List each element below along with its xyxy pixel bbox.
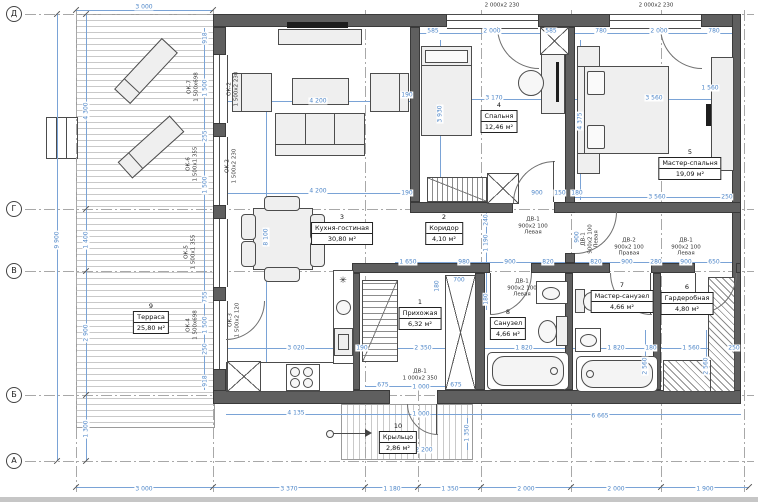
wall-top — [538, 14, 610, 27]
dim-label: 2 900 — [83, 323, 90, 342]
bed-double — [577, 66, 669, 154]
washbasin — [575, 328, 601, 352]
dim-label: 3 560 — [647, 194, 666, 201]
dim-label: 780 — [594, 28, 607, 35]
door-tag-dv2: ДВ-2900х2 100Правая — [614, 237, 644, 257]
dim-label: 2 200 — [414, 447, 433, 454]
dim-label: 918 — [202, 31, 209, 44]
dim-label: 900 — [503, 259, 516, 266]
dim-label: 180 — [644, 345, 657, 352]
axis-line-1 — [76, 10, 77, 492]
dim-label: 255 — [202, 129, 209, 142]
dim-label: 1 560 — [700, 85, 719, 92]
dim-label: 820 — [589, 259, 602, 266]
oven — [334, 328, 353, 356]
room-label-master-bath: 7Мастер-санузел4,66 м² — [591, 281, 654, 313]
dim-label: 900 — [530, 190, 543, 197]
dim-label: 650 — [707, 259, 720, 266]
room-label-terrace: 9Терраса25,80 м² — [133, 302, 169, 334]
dim-label: 2 000 — [482, 28, 501, 35]
dim-label: 190 — [400, 190, 413, 197]
fridge-icon: ✳ — [339, 278, 347, 285]
dim-label: 980 — [457, 259, 470, 266]
dim-label: 240 — [483, 213, 490, 226]
door-arc-bedroom — [513, 161, 555, 203]
wall-living-bedroom — [410, 27, 420, 202]
dim-label: 250 — [202, 342, 209, 355]
axis-bubble-g: Г — [6, 201, 22, 217]
washbasin — [536, 281, 568, 304]
dim-label: 1 820 — [606, 345, 625, 352]
dim-label: 755 — [202, 290, 209, 303]
room-label-bath: 8Санузел4,66 м² — [490, 308, 526, 340]
dim-label: 150 — [553, 190, 566, 197]
sheet-edge — [0, 497, 758, 502]
window-tag-ok5: ОК-51 500х1 355 — [184, 235, 197, 270]
dining-chair — [264, 267, 300, 282]
floor-plan: ✳ — [0, 0, 758, 502]
dim-label: 675 — [376, 382, 389, 389]
terrace-steps — [46, 117, 78, 159]
dim-label: 900 — [679, 259, 692, 266]
toilet-tank — [556, 316, 568, 346]
door-tag-dv1: ДВ-1900х2 100Левая — [507, 278, 537, 298]
axis-bubble-d: Д — [6, 6, 22, 22]
axis-line-8 — [744, 10, 745, 492]
dim-label: 4 375 — [577, 111, 584, 130]
dim-label: 3 370 — [279, 486, 298, 493]
axis-bubble-b: Б — [6, 387, 22, 403]
dim-label: 2 000 — [516, 486, 535, 493]
window-tag-ok3: ОК-31 500х2 120 — [228, 303, 241, 338]
dim-label: 1 560 — [681, 345, 700, 352]
dim-label: 180 — [483, 292, 490, 305]
closet-hatch — [427, 177, 487, 202]
room-label-kitchen-living: 3Кухня-гостиная30,80 м² — [311, 213, 373, 245]
kitchen-corner-cabinet — [227, 361, 261, 392]
window-swing-bedroom — [497, 27, 539, 69]
dim-label: 2 560 — [642, 356, 649, 375]
dim-label: 190 — [400, 92, 413, 99]
dim-label: 1 500 — [202, 175, 209, 194]
dim-label: 1 190 — [483, 233, 490, 252]
door-tag-entrance: ДВ-11 000х2 350 — [403, 369, 438, 382]
dim-label: 700 — [452, 277, 465, 284]
dim-label: 180 — [570, 190, 583, 197]
sofa — [275, 113, 365, 156]
axis-bubble-a: А — [6, 453, 22, 469]
dim-label: 1 180 — [382, 486, 401, 493]
dim-label: 4 300 — [83, 101, 90, 120]
window-tag-ok2: ОК-21 500х2 230 — [225, 149, 238, 184]
hall-wardrobe — [445, 275, 476, 390]
tv — [706, 104, 711, 126]
door-leaf — [436, 404, 437, 434]
window-tag-ok1: ОК-12 000х2 230 — [639, 0, 674, 9]
wall-bedroom-master — [565, 253, 575, 263]
dim-label: 190 — [355, 345, 368, 352]
window-ok5 — [213, 219, 228, 287]
dim-label: 3 000 — [134, 486, 153, 493]
door-tag-dv1: ДВ-1900х2 100Левая — [518, 216, 548, 236]
window-tag-ok1: ОК-12 000х2 230 — [485, 0, 520, 9]
dim-label: 675 — [449, 382, 462, 389]
dim-label: 918 — [202, 374, 209, 387]
room-label-corridor: 2Коридор4,10 м² — [425, 213, 463, 245]
axis-line-a — [6, 461, 754, 462]
dim-label: 4 200 — [308, 188, 327, 195]
dim-label: 9 900 — [54, 230, 61, 249]
window-tag-ok4: ОК-41 500х698 — [186, 310, 199, 340]
dining-chair — [264, 196, 300, 211]
dim-label: 2 560 — [703, 356, 710, 375]
dim-label: 3 000 — [134, 4, 153, 11]
burner — [290, 378, 300, 388]
dim-label: 900 — [620, 259, 633, 266]
wall-bottom — [213, 390, 390, 404]
tv-console — [278, 29, 362, 45]
room-label-master-bedroom: 5Мастер-спальня19,09 м² — [658, 148, 721, 180]
dim-label: 585 — [426, 28, 439, 35]
bathtub — [487, 352, 569, 390]
dim-label: 250 — [720, 194, 733, 201]
dining-chair — [241, 214, 256, 240]
dim-label: 2 000 — [606, 486, 625, 493]
dim-label: 1 400 — [83, 230, 90, 249]
dim-label: 3 020 — [286, 345, 305, 352]
nightstand — [577, 153, 600, 174]
entry-arrow-line — [333, 433, 366, 434]
dim-label: 1 650 — [398, 259, 417, 266]
entry-arrow-icon — [365, 429, 372, 437]
dim-label: 4 135 — [286, 410, 305, 417]
room-label-bedroom: 4Спальня12,46 м² — [481, 101, 518, 133]
dim-label: 6 665 — [590, 413, 609, 420]
dim-label: 820 — [541, 259, 554, 266]
dim-label: 3 930 — [437, 104, 444, 123]
dining-chair — [241, 241, 256, 267]
dim-label: 1 000 — [411, 411, 430, 418]
wall-left — [213, 287, 226, 301]
dim-tick — [746, 484, 752, 490]
dim-label: 3 560 — [644, 95, 663, 102]
burner — [303, 367, 313, 377]
dim-label: 1 500 — [202, 315, 209, 334]
wall-left — [213, 27, 226, 55]
tv — [287, 22, 348, 28]
wall-bottom — [437, 390, 741, 404]
desk-chair — [518, 70, 544, 96]
dim-label: 280 — [649, 259, 662, 266]
door-tag-dv1: ДВ-1900х2 100Левая — [580, 224, 600, 254]
dim-label: 1 900 — [695, 486, 714, 493]
dim-label: 4 200 — [308, 98, 327, 105]
wall-left — [213, 123, 226, 137]
dim-label: 1 500 — [202, 78, 209, 97]
window-tag-ok7: ОК-71 500х698 — [187, 72, 200, 102]
door-leaf — [575, 212, 616, 213]
burner — [303, 378, 313, 388]
monitor — [556, 62, 559, 102]
sink — [336, 300, 351, 315]
dim-label: 1 350 — [464, 423, 471, 442]
dim-label: 1 000 — [411, 384, 430, 391]
dim-label: 250 — [727, 345, 740, 352]
wall-hall-bath — [475, 273, 485, 390]
wall-left — [213, 205, 226, 219]
axis-bubble-v: В — [6, 263, 22, 279]
dim-label: 585 — [544, 28, 557, 35]
axis-line-3 — [365, 10, 366, 492]
dim-label: 1 820 — [514, 345, 533, 352]
dim-label: 780 — [707, 28, 720, 35]
toilet-bowl — [538, 320, 557, 343]
burner — [290, 367, 300, 377]
dim-label: 8 100 — [263, 227, 270, 246]
room-label-porch: 10Крыльцо2,86 м² — [379, 422, 417, 454]
dim-line — [76, 487, 749, 488]
dim-label: 2 000 — [649, 28, 668, 35]
window-tag-ok6: ОК-61 500х1 355 — [186, 147, 199, 182]
door-tag-dv1: ДВ-1900х2 100Левая — [671, 237, 701, 257]
window-tag-ok2: ОК-21 500х2 230 — [227, 72, 240, 107]
dim-label: 1 350 — [440, 486, 459, 493]
nightstand — [577, 46, 600, 67]
dim-label: 180 — [434, 279, 441, 292]
desk — [541, 52, 565, 114]
dim-label: 1 300 — [83, 419, 90, 438]
room-label-wardrobe: 6Гардеробная4,80 м² — [661, 283, 714, 315]
entry-marker — [326, 430, 334, 438]
bed-single — [421, 46, 472, 136]
dim-label: 2 350 — [413, 345, 432, 352]
room-label-hall: 1Прихожая6,32 м² — [399, 298, 442, 330]
wall-corridor-bottom — [736, 263, 741, 273]
